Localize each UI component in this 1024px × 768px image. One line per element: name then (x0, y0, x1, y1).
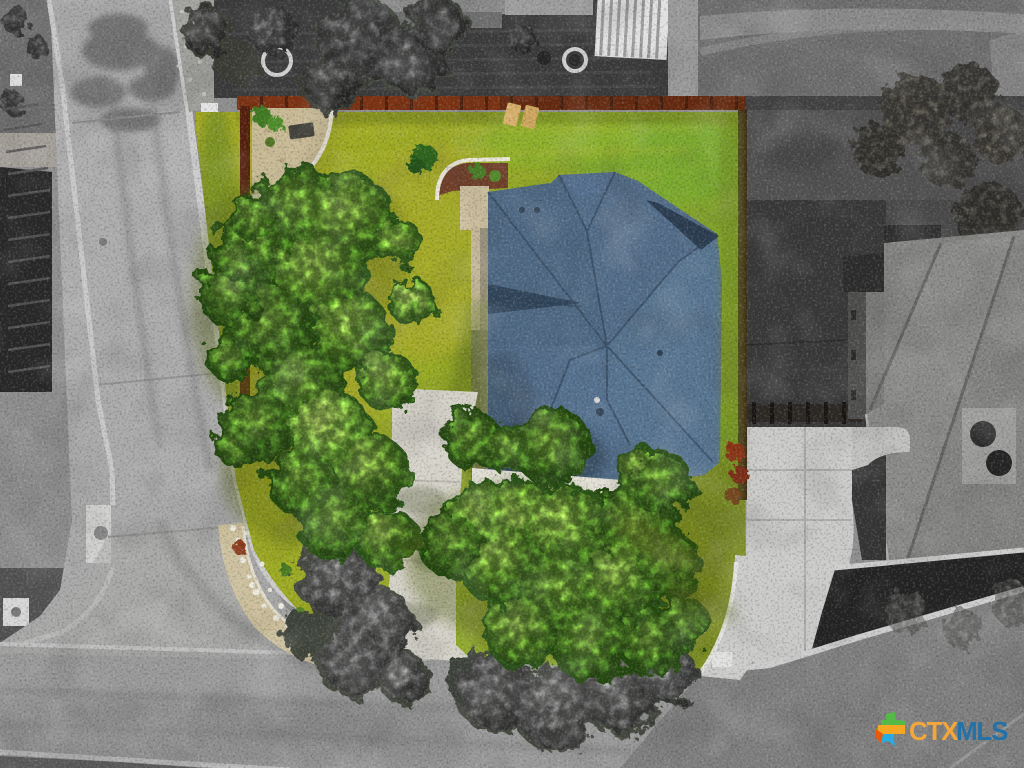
svg-text:CTX: CTX (909, 716, 959, 746)
svg-text:MLS: MLS (956, 716, 1008, 746)
